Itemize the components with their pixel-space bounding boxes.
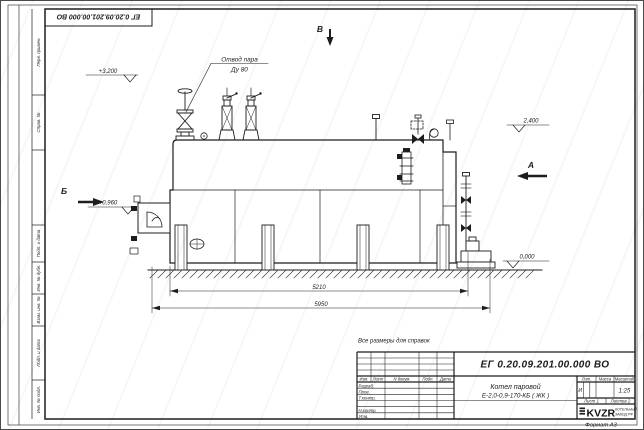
logo-sub1: КОТЕЛЬНЫЙ [615,408,638,412]
doc-name-line1: Котел паровой [490,383,540,391]
col-list: Лист [372,377,384,382]
steam-outlet-valve [176,89,194,140]
view-a-label: А [527,160,534,170]
vent-pipe [373,115,380,141]
margin-label: Инв. № подл. [36,386,41,413]
role-razrab: Разраб. [359,383,375,388]
safety-valve-2 [243,88,262,140]
burner [130,196,170,254]
top-nozzle [201,133,207,139]
dimension-5210: 5210 [170,252,468,296]
boiler-body [170,140,456,263]
view-v-label: В [317,24,323,34]
blueprint-svg: Перв. примен. Справ. № Подп. и дата Инв.… [0,0,644,430]
reference-note: Все размеры для справок [358,339,431,345]
boiler-drawing: 5210 5950 +3,200 2,400 +0,960 [61,24,549,313]
margin-label: Подп. и дата [36,229,41,257]
elevation-2400-text: 2,400 [522,119,539,125]
col-podp: Подп. [422,377,433,382]
sheet-cell: Лист 1 [583,399,600,404]
callout-line1: Отвод пара [221,56,258,64]
change-table-header: Изм. Лист N докум. Подп. Дата [360,377,452,382]
company-logo: KVZR КОТЕЛЬНЫЙ ЗАВОД РФ [580,408,638,420]
role-rows: Разраб. Пров. Т.контр. Н.контр. Утв. [359,383,377,419]
col-izm: Изм. [360,377,369,382]
role-tkontr: Т.контр. [359,396,376,401]
litera-value: И [578,388,582,394]
elevation-3200-text: +3,200 [99,69,118,75]
view-marker-b: Б [61,186,104,206]
role-nkontr: Н.контр. [359,408,377,413]
view-marker-a: А [517,160,547,180]
elevation-0000: 0,000 [503,255,549,269]
margin-cells: Перв. примен. Справ. № Подп. и дата Инв.… [32,9,45,419]
elevation-2400: 2,400 [507,119,549,133]
role-prov: Пров. [359,389,370,394]
col-data: Дата [439,377,452,382]
lit-header: Лит. [581,377,592,382]
designation-text: ЕГ 0.20.09.201.00.000 ВО [481,360,610,371]
doc-name-line2: Е-2,0-0,9-170-КБ ( ЖК ) [482,393,549,400]
callout-line2: Ду 80 [230,67,248,74]
col-dokum: N докум. [394,377,411,382]
format-label: Формат А3 [585,423,617,429]
safety-valve-1 [219,88,238,140]
ground-hatch [150,270,534,278]
manhole [190,239,204,249]
feed-column-pump [457,173,495,269]
scale-header: Масштаб [615,377,635,382]
dim-5210-text: 5210 [312,285,326,291]
steam-outlet-callout: Отвод пара Ду 80 [186,56,268,113]
view-marker-v: В [317,24,334,46]
margin-label: Подп. и дата [36,339,41,367]
role-utv: Утв. [359,414,369,419]
elevation-3200: +3,200 [86,69,138,82]
logo-kvzr-text: KVZR [587,408,616,420]
view-b-label: Б [61,186,67,196]
logo-sub2: ЗАВОД РФ [615,413,633,417]
water-gauge [397,148,413,184]
inverted-designation-box: ЕГ 0.20.09.201.00.000 ВО [45,9,152,26]
dim-5950-text: 5950 [314,302,328,308]
lit-mass-scale: Лит. Масса Масштаб И 1:25 Лист 1 Листов … [578,377,635,404]
elevation-0000-text: 0,000 [519,255,535,261]
mass-header: Масса [599,377,612,382]
scale-value: 1:25 [619,389,631,395]
margin-label: Справ. № [36,112,41,132]
sheets-cell: Листов 2 [610,399,631,404]
margin-label: Инв. № дубл. [36,264,41,291]
margin-label: Перв. примен. [36,37,41,66]
margin-label: Взам. инв. № [36,296,41,323]
inverted-designation-text: ЕГ 0.20.09.201.00.000 ВО [56,12,140,19]
drawing-sheet: Перв. примен. Справ. № Подп. и дата Инв.… [0,0,644,430]
title-block: ЕГ 0.20.09.201.00.000 ВО Изм. Лист N док… [357,352,638,429]
